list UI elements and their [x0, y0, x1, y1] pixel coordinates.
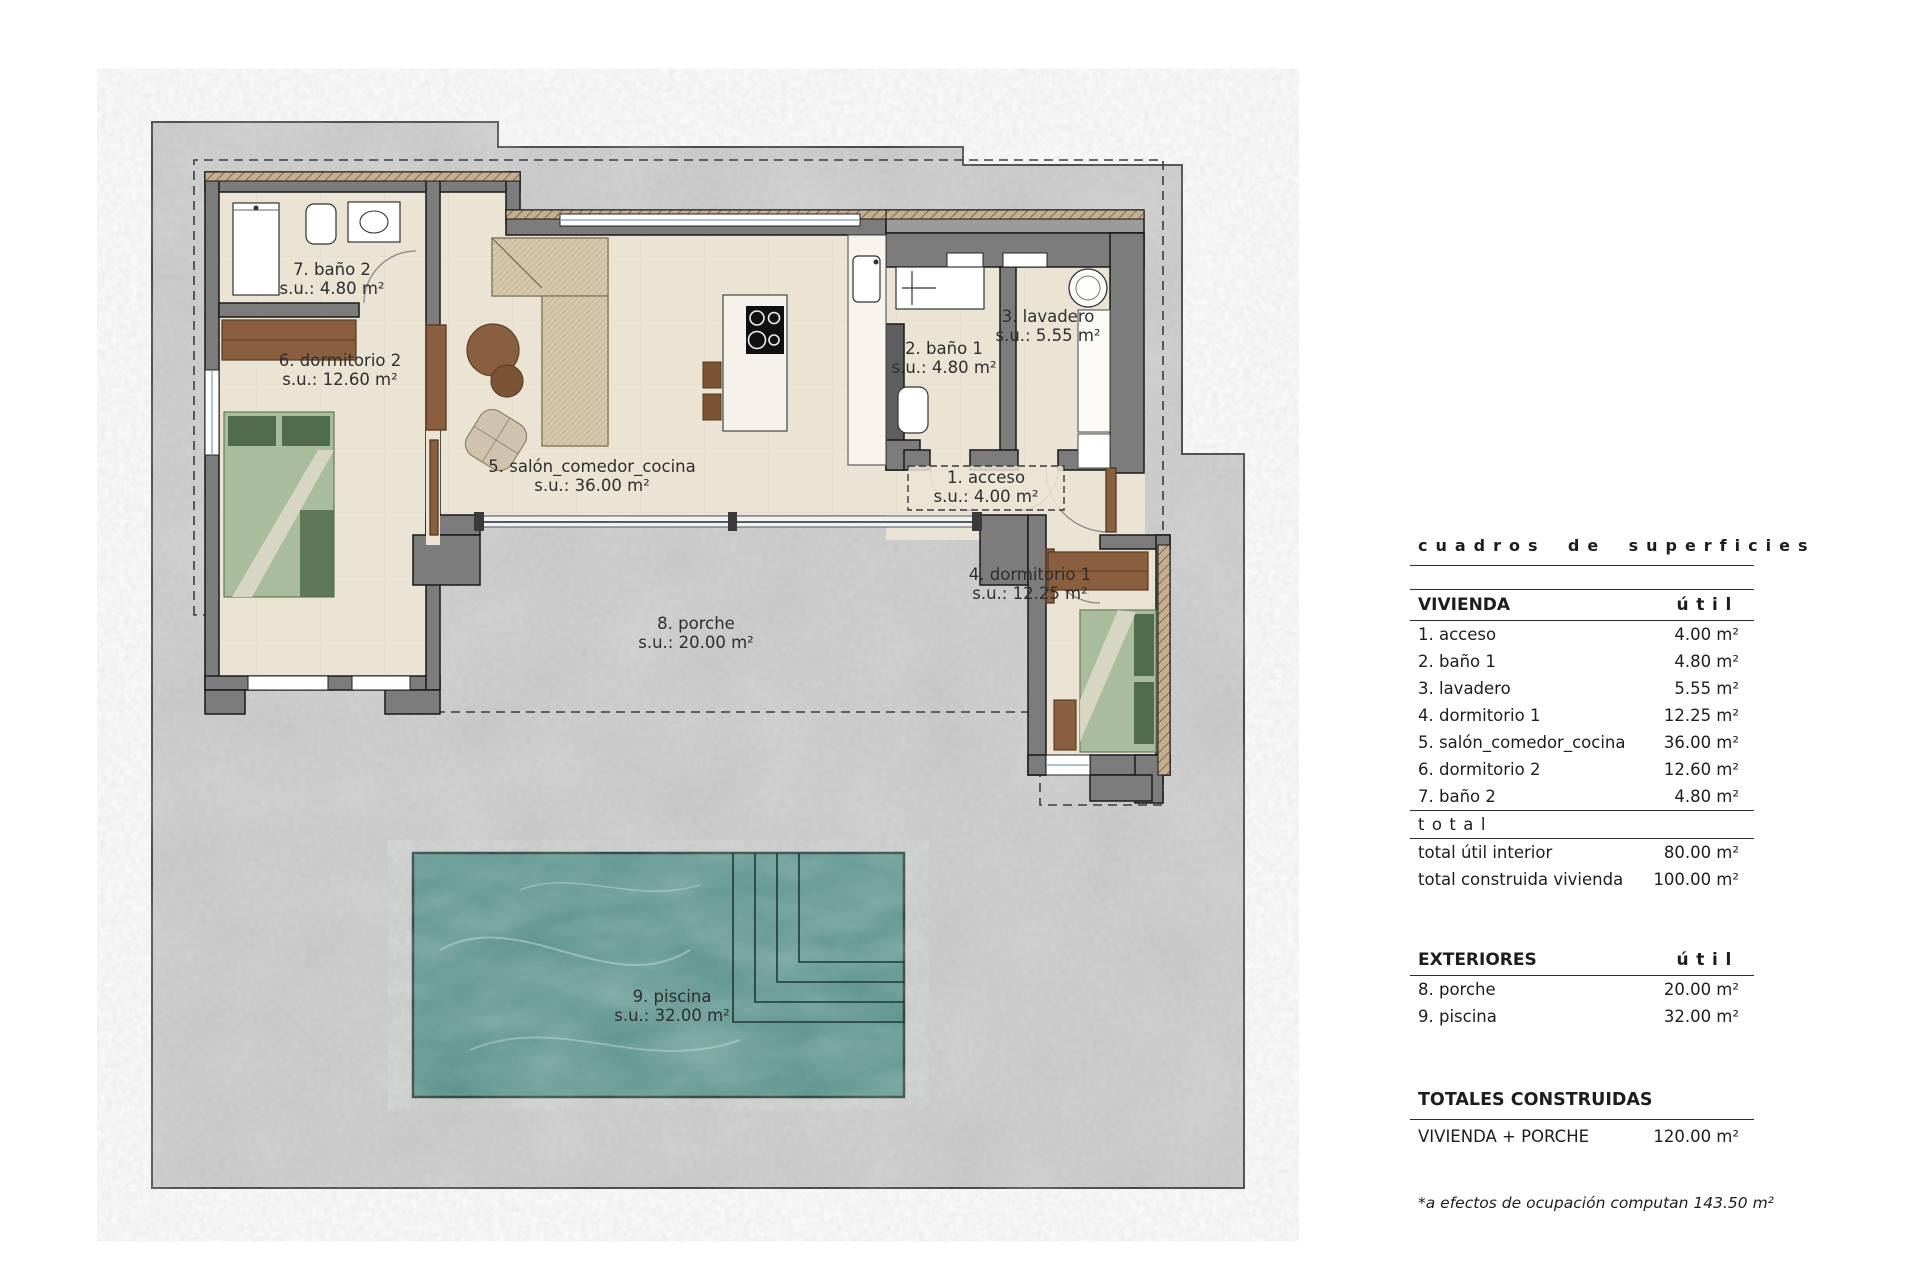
- surfaces-table: cuadros de superficies VIVIENDA útil 1. …: [1410, 536, 1754, 1212]
- table-row: 8. porche 20.00 m²: [1410, 976, 1754, 1003]
- vivienda-header-row: VIVIENDA útil: [1410, 590, 1754, 621]
- table-row: 2. baño 1 4.80 m²: [1410, 648, 1754, 675]
- toilet-icon: [306, 204, 336, 244]
- room-label-salon: 5. salón_comedor_cocina s.u.: 36.00 m²: [488, 458, 695, 495]
- bench-symbol: [1054, 700, 1076, 750]
- room-label-lavadero: 3. lavadero s.u.: 5.55 m²: [995, 308, 1100, 345]
- table-row: 3. lavadero 5.55 m²: [1410, 675, 1754, 702]
- stool-symbol: [703, 394, 721, 420]
- exteriores-section: EXTERIORES útil 8. porche 20.00 m² 9. pi…: [1410, 945, 1754, 1030]
- exteriores-header-row: EXTERIORES útil: [1410, 945, 1754, 976]
- table-row: 7. baño 2 4.80 m²: [1410, 783, 1754, 810]
- total-divider-row: total: [1410, 810, 1754, 839]
- totales-header: TOTALES CONSTRUIDAS: [1410, 1090, 1754, 1120]
- room-label-piscina: 9. piscina s.u.: 32.00 m²: [614, 988, 730, 1025]
- bed-symbol: [1080, 610, 1156, 752]
- table-row: total construida vivienda 100.00 m²: [1410, 866, 1754, 893]
- table-row: 6. dormitorio 2 12.60 m²: [1410, 756, 1754, 783]
- table-row: 1. acceso 4.00 m²: [1410, 621, 1754, 648]
- pool-symbol: [413, 853, 904, 1097]
- room-label-bano1: 2. baño 1 s.u.: 4.80 m²: [891, 340, 996, 377]
- table-row: total útil interior 80.00 m²: [1410, 839, 1754, 866]
- table-footnote: *a efectos de ocupación computan 143.50 …: [1410, 1194, 1754, 1212]
- stool-symbol: [703, 362, 721, 388]
- table-row: 9. piscina 32.00 m²: [1410, 1003, 1754, 1030]
- washing-machine-icon: [1069, 269, 1107, 307]
- room-label-bano2: 7. baño 2 s.u.: 4.80 m²: [279, 261, 384, 298]
- bed-symbol: [224, 412, 334, 597]
- shower-head-icon: [254, 206, 259, 211]
- room-label-dormitorio2: 6. dormitorio 2 s.u.: 12.60 m²: [279, 352, 401, 389]
- table-title: cuadros de superficies: [1410, 536, 1754, 566]
- table-row: VIVIENDA + PORCHE 120.00 m²: [1410, 1120, 1754, 1152]
- kitchen-counter-symbol: [848, 235, 886, 465]
- toilet-icon: [898, 387, 928, 433]
- room-label-dormitorio1: 4. dormitorio 1 s.u.: 12.25 m²: [969, 566, 1091, 603]
- floorplan-page: 1. acceso s.u.: 4.00 m² 2. baño 1 s.u.: …: [0, 0, 1920, 1280]
- vivienda-section: VIVIENDA útil 1. acceso 4.00 m² 2. baño …: [1410, 589, 1754, 893]
- room-label-acceso: 1. acceso s.u.: 4.00 m²: [933, 469, 1038, 506]
- table-row: 4. dormitorio 1 12.25 m²: [1410, 702, 1754, 729]
- side-table-symbol: [491, 365, 523, 397]
- table-row: 5. salón_comedor_cocina 36.00 m²: [1410, 729, 1754, 756]
- room-label-porche: 8. porche s.u.: 20.00 m²: [638, 615, 754, 652]
